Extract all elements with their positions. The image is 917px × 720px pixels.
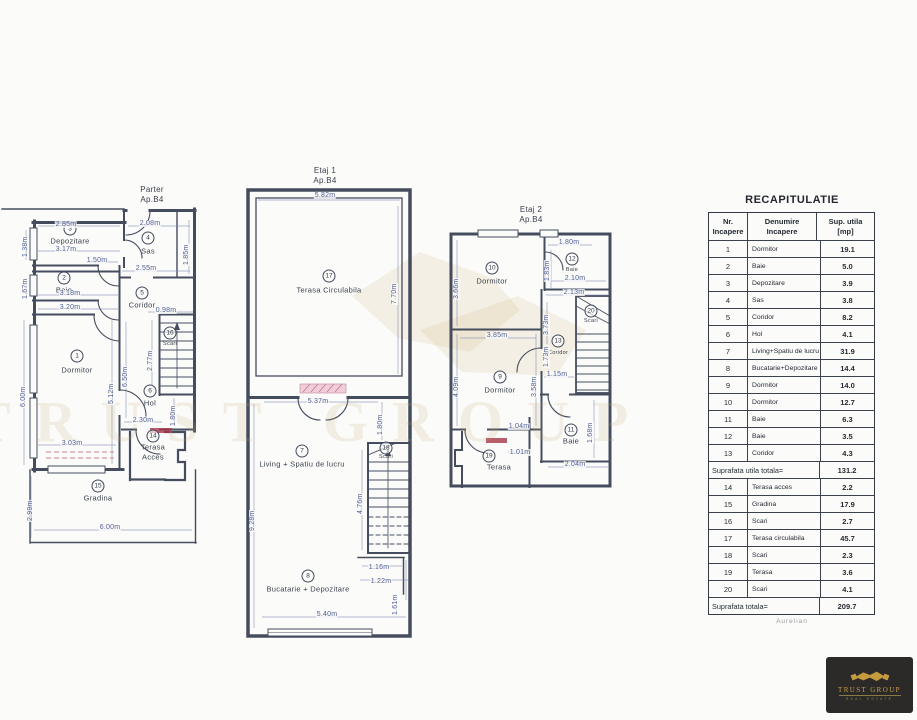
dim-label: 6.00m <box>99 524 121 531</box>
cell-mp: 2.3 <box>821 547 874 563</box>
recap-header-nr: Nr. Incapere <box>709 213 748 240</box>
dim-label: 6.00m <box>20 386 27 408</box>
table-row: 7Living+Spatiu de lucru31.9 <box>709 342 874 359</box>
logo-subtitle: REAL ESTATE <box>846 697 893 701</box>
dim-label: 5.12m <box>108 383 115 405</box>
plan-title-etaj2-line1: Etaj 2 <box>519 205 542 215</box>
dim-label: 2.55m <box>135 265 157 272</box>
subtotal-row: Suprafata utila totala= 131.2 <box>709 461 874 478</box>
cell-nr: 11 <box>709 411 748 427</box>
cell-nr: 19 <box>709 564 748 580</box>
recap-header-text: Denumire <box>765 217 800 226</box>
dim-label: 1.61m <box>392 594 399 616</box>
cell-mp: 5.0 <box>821 258 874 274</box>
cell-mp: 2.7 <box>821 513 874 529</box>
plan-title-etaj1: Etaj 1 Ap.B4 <box>313 166 336 187</box>
recap-section: RECAPITULATIE Nr. Incapere Denumire Inca… <box>708 194 876 625</box>
dim-label: 1.38m <box>22 236 29 258</box>
dim-label: 3.18m <box>59 290 81 297</box>
cell-mp: 3.8 <box>821 292 874 308</box>
cell-mp: 4.1 <box>821 581 874 597</box>
dim-label: 2.13m <box>563 289 585 296</box>
logo-divider <box>839 695 901 696</box>
cell-nr: 2 <box>709 258 748 274</box>
cell-mp: 31.9 <box>821 343 874 359</box>
room-number: 18 <box>380 442 393 455</box>
cell-nr: 14 <box>709 479 748 495</box>
cell-name: Scari <box>748 547 821 563</box>
cell-mp: 4.1 <box>821 326 874 342</box>
dim-label: 2.85m <box>55 221 77 228</box>
cell-nr: 20 <box>709 581 748 597</box>
cell-name: Gradina <box>748 496 821 512</box>
room-label: Depozitare <box>50 237 89 246</box>
room-label: Dormitor <box>61 366 92 375</box>
table-row: 2Baie5.0 <box>709 257 874 274</box>
dim-label: 3.58m <box>531 376 538 398</box>
dim-label: 5.37m <box>307 398 329 405</box>
table-row: 3Depozitare3.9 <box>709 274 874 291</box>
room-number: 4 <box>142 232 155 245</box>
room-number: 12 <box>566 253 579 266</box>
dim-label: 9.28m <box>249 510 256 532</box>
dim-label: 1.16m <box>368 564 390 571</box>
plan-title-parter-line2: Ap.B4 <box>140 195 164 205</box>
room-label: Terasa Circulabila <box>296 286 361 295</box>
room-label: Sas <box>141 247 155 256</box>
cell-name: Dormitor <box>748 377 821 393</box>
cell-nr: 10 <box>709 394 748 410</box>
table-row: 1Dormitor19.1 <box>709 240 874 257</box>
room-label: Baie <box>566 267 578 273</box>
room-label: Scari <box>163 341 177 347</box>
recap-title: RECAPITULATIE <box>708 194 876 206</box>
cell-nr: 18 <box>709 547 748 563</box>
cell-name: Baie <box>748 258 821 274</box>
cell-nr: 5 <box>709 309 748 325</box>
total-label: Suprafata totala= <box>709 598 820 614</box>
cell-nr: 6 <box>709 326 748 342</box>
room-number: 16 <box>164 327 177 340</box>
cell-name: Baie <box>748 428 821 444</box>
dim-label: 1.68m <box>587 422 594 444</box>
table-row: 9Dormitor14.0 <box>709 376 874 393</box>
dim-label: 2.99m <box>27 500 34 522</box>
table-row: 12Baie3.5 <box>709 427 874 444</box>
room-label: Acces <box>142 453 164 462</box>
cell-nr: 1 <box>709 241 748 257</box>
table-row: 16Scari2.7 <box>709 512 874 529</box>
room-number: 10 <box>486 262 499 275</box>
dim-label: 1.67m <box>22 278 29 300</box>
plan-title-etaj2: Etaj 2 Ap.B4 <box>519 205 542 226</box>
cell-name: Baie <box>748 411 821 427</box>
recap-header-denumire: Denumire Incapere <box>748 213 817 240</box>
room-label: Scari <box>379 454 393 460</box>
table-row: 14Terasa acces2.2 <box>709 478 874 495</box>
plan-title-etaj2-line2: Ap.B4 <box>519 215 542 225</box>
cell-name: Terasa <box>748 564 821 580</box>
dim-label: 1.15m <box>546 371 568 378</box>
dim-label: 2.30m <box>132 417 154 424</box>
room-number: 17 <box>323 270 336 283</box>
dim-label: 1.73m <box>543 346 550 368</box>
stair-arrow-icon <box>174 322 391 456</box>
recap-header-text: [mp] <box>837 227 853 236</box>
dim-label: 3.66m <box>453 278 460 300</box>
cell-nr: 16 <box>709 513 748 529</box>
dim-label: 2.08m <box>139 220 161 227</box>
cell-name: Coridor <box>748 445 821 461</box>
dim-label: 1.50m <box>86 257 108 264</box>
room-number: 14 <box>147 430 160 443</box>
room-label: Hol <box>144 399 156 408</box>
dim-label: 0.98m <box>155 307 177 314</box>
dim-label: 6.50m <box>122 366 129 388</box>
dim-label: 1.83m <box>544 260 551 282</box>
room-number: 20 <box>585 305 598 318</box>
table-row: 15Gradina17.9 <box>709 495 874 512</box>
room-number: 9 <box>494 371 507 384</box>
dim-label: 3.03m <box>61 440 83 447</box>
cell-nr: 8 <box>709 360 748 376</box>
cell-nr: 17 <box>709 530 748 546</box>
trust-group-logo: TRUST GROUP REAL ESTATE <box>826 657 913 713</box>
dim-label: 1.01m <box>509 449 531 456</box>
room-number: 8 <box>302 570 315 583</box>
room-label: Gradina <box>84 494 113 503</box>
dim-label: 4.76m <box>357 493 364 515</box>
cell-mp: 3.5 <box>821 428 874 444</box>
dim-label: 5.40m <box>316 611 338 618</box>
subtotal-label: Suprafata utila totala= <box>709 462 820 478</box>
dim-label: 2.04m <box>564 461 586 468</box>
room-label: Coridor <box>548 350 568 356</box>
room-number: 2 <box>58 272 71 285</box>
cell-nr: 13 <box>709 445 748 461</box>
dim-label: 1.22m <box>370 578 392 585</box>
cell-nr: 12 <box>709 428 748 444</box>
cell-name: Scari <box>748 581 821 597</box>
cell-nr: 15 <box>709 496 748 512</box>
room-label: Scari <box>584 318 598 324</box>
room-label: Terasa <box>487 463 511 472</box>
room-label: Baie <box>563 437 579 446</box>
cell-mp: 3.9 <box>821 275 874 291</box>
dim-label: 1.85m <box>183 244 190 266</box>
cell-mp: 19.1 <box>821 241 874 257</box>
room-number: 11 <box>565 424 578 437</box>
cell-name: Dormitor <box>748 241 821 257</box>
cell-nr: 4 <box>709 292 748 308</box>
dim-label: 2.10m <box>564 275 586 282</box>
room-label: Coridor <box>129 301 156 310</box>
dim-label: 2.77m <box>147 350 154 372</box>
cell-name: Dormitor <box>748 394 821 410</box>
cell-name: Scari <box>748 513 821 529</box>
plan-title-parter: Parter Ap.B4 <box>140 185 164 206</box>
cell-mp: 8.2 <box>821 309 874 325</box>
floor-plan-sheet: TRUST GROUP Parter Ap.B4 Etaj 1 Ap.B4 Et… <box>0 0 917 720</box>
room-label: Bucatarie + Depozitare <box>266 585 349 594</box>
room-number: 7 <box>296 445 309 458</box>
recap-table: Nr. Incapere Denumire Incapere Sup. util… <box>708 212 875 615</box>
room-number: 5 <box>136 287 149 300</box>
logo-title: TRUST GROUP <box>838 686 901 694</box>
table-row: 10Dormitor12.7 <box>709 393 874 410</box>
recap-header-text: Incapere <box>767 227 798 236</box>
cell-name: Bucatarie+Depozitare <box>748 360 821 376</box>
total-value: 209.7 <box>820 598 874 614</box>
dim-label: 1.80m <box>170 405 177 427</box>
table-row: 19Terasa3.6 <box>709 563 874 580</box>
recap-header-text: Sup. utila <box>829 217 863 226</box>
cell-mp: 4.3 <box>821 445 874 461</box>
cell-mp: 12.7 <box>821 394 874 410</box>
room-number: 15 <box>92 480 105 493</box>
cell-name: Coridor <box>748 309 821 325</box>
dim-label: 1.80m <box>558 239 580 246</box>
dim-label: 3.73m <box>543 314 550 336</box>
cell-mp: 2.2 <box>821 479 874 495</box>
cell-name: Terasa circulabila <box>748 530 821 546</box>
dim-label: 4.09m <box>453 376 460 398</box>
plan-title-parter-line1: Parter <box>140 185 164 195</box>
room-label: Dormitor <box>476 277 507 286</box>
room-label: Dormitor <box>484 386 515 395</box>
door-sill-hatch <box>300 384 346 393</box>
dim-label: 3.17m <box>55 246 77 253</box>
cell-mp: 3.6 <box>821 564 874 580</box>
plan-title-etaj1-line2: Ap.B4 <box>313 176 336 186</box>
cell-name: Depozitare <box>748 275 821 291</box>
dim-label: 7.70m <box>391 283 398 305</box>
room-label: Terasa <box>141 443 165 452</box>
cell-mp: 14.4 <box>821 360 874 376</box>
room-number: 13 <box>552 335 565 348</box>
room-number: 19 <box>483 450 496 463</box>
table-row: 5Coridor8.2 <box>709 308 874 325</box>
recap-header-text: Incapere <box>713 227 744 236</box>
table-row: 8Bucatarie+Depozitare14.4 <box>709 359 874 376</box>
cell-name: Living+Spatiu de lucru <box>748 343 821 359</box>
cell-name: Sas <box>748 292 821 308</box>
table-row: 4Sas3.8 <box>709 291 874 308</box>
dim-label: 5.82m <box>314 192 336 199</box>
cell-nr: 3 <box>709 275 748 291</box>
total-row: Suprafata totala= 209.7 <box>709 597 874 614</box>
plan-title-etaj1-line1: Etaj 1 <box>313 166 336 176</box>
table-row: 17Terasa circulabila45.7 <box>709 529 874 546</box>
table-row: 18Scari2.3 <box>709 546 874 563</box>
recap-header-text: Nr. <box>723 217 733 226</box>
table-row: 6Hol4.1 <box>709 325 874 342</box>
cell-mp: 45.7 <box>821 530 874 546</box>
table-row: 11Baie6.3 <box>709 410 874 427</box>
cell-mp: 14.0 <box>821 377 874 393</box>
recap-header-row: Nr. Incapere Denumire Incapere Sup. util… <box>709 213 874 240</box>
cell-nr: 7 <box>709 343 748 359</box>
cell-mp: 6.3 <box>821 411 874 427</box>
cell-name: Terasa acces <box>748 479 821 495</box>
footer-note: Aurelian <box>708 618 876 625</box>
dim-label: 1.04m <box>508 423 530 430</box>
subtotal-value: 131.2 <box>820 462 874 478</box>
cell-mp: 17.9 <box>821 496 874 512</box>
cell-name: Hol <box>748 326 821 342</box>
cell-nr: 9 <box>709 377 748 393</box>
room-label: Living + Spatiu de lucru <box>259 460 344 469</box>
dim-label: 3.85m <box>486 332 508 339</box>
dim-label: 1.80m <box>377 414 384 436</box>
table-row: 13Coridor4.3 <box>709 444 874 461</box>
dim-label: 3.20m <box>59 304 81 311</box>
room-number: 6 <box>144 385 157 398</box>
dashed-marker <box>46 452 114 458</box>
table-row: 20Scari4.1 <box>709 580 874 597</box>
room-number: 1 <box>71 350 84 363</box>
handshake-icon <box>848 669 892 685</box>
recap-header-sup: Sup. utila [mp] <box>817 213 874 240</box>
